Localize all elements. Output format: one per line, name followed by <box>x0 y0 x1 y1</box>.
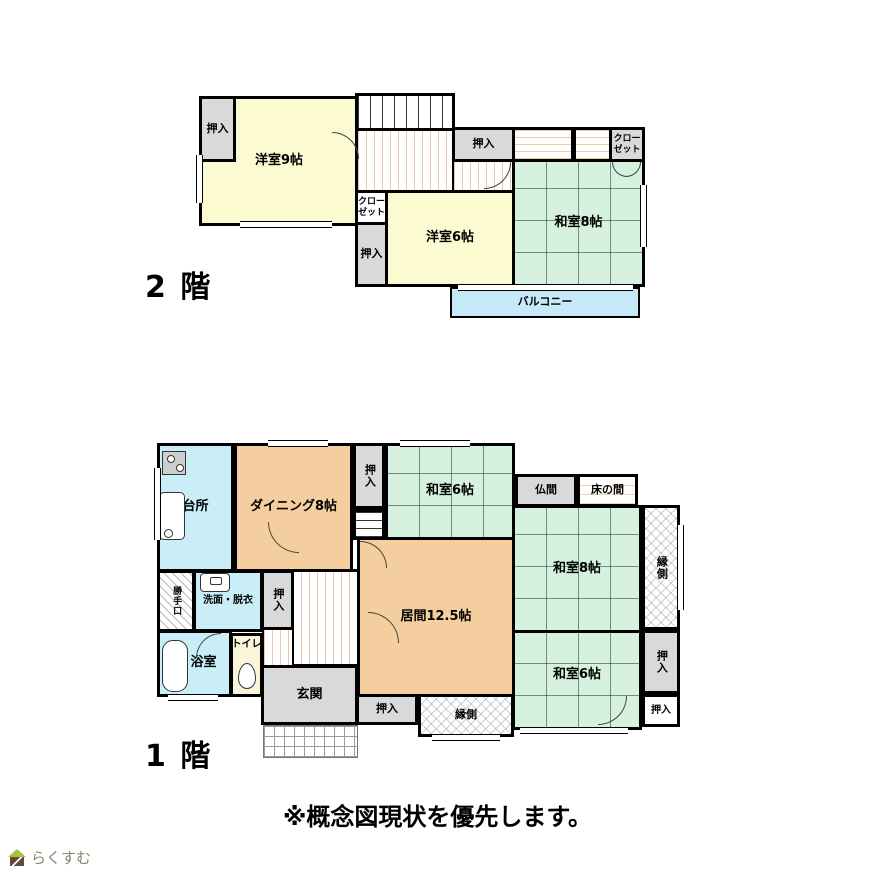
hallway-2f <box>355 128 455 193</box>
logo-text: らくすむ <box>31 847 91 868</box>
washbasin-icon <box>200 573 230 592</box>
window <box>432 734 500 741</box>
stairs-1f <box>353 509 385 540</box>
floor1-label: 1 階 <box>145 731 212 775</box>
room-label: 勝手口 <box>171 586 181 616</box>
closet-1f-oshiire-br: 押入 <box>642 694 680 727</box>
room-1f-butsuma: 仏間 <box>515 474 577 507</box>
room-label: 和室6帖 <box>426 484 474 499</box>
sliding-window <box>458 284 633 291</box>
engawa-right: 縁側 <box>642 505 680 630</box>
closet-2f-oshiire-c: 押入 <box>355 222 388 287</box>
room-label: ダイニング8帖 <box>250 500 337 515</box>
closet-2f-oshiire-b: 押入 <box>452 127 515 162</box>
room-label: 押入 <box>271 588 284 612</box>
room-label: 押入 <box>376 703 398 716</box>
closet-1f-oshiire-mid: 押入 <box>261 570 294 630</box>
wall-divider <box>571 127 576 162</box>
window <box>640 185 647 247</box>
room-1f-washitsu6-top: 和室6帖 <box>385 443 515 540</box>
room-label: トイレ <box>232 639 262 651</box>
closet-2f-hatch <box>512 127 612 162</box>
room-label: 押入 <box>361 248 383 261</box>
room-label: 和室8帖 <box>553 562 601 577</box>
window <box>196 155 203 203</box>
stairs-2f <box>355 93 455 131</box>
engawa-bottom: 縁側 <box>418 694 514 737</box>
room-label: バルコニー <box>518 296 573 309</box>
room-label: 押入 <box>363 464 376 488</box>
room-label: 和室8帖 <box>554 216 602 231</box>
bathtub-icon <box>162 640 188 692</box>
window <box>240 221 332 228</box>
window <box>154 468 161 540</box>
room-label: 押入 <box>207 123 229 136</box>
window <box>677 525 684 610</box>
window <box>268 440 328 447</box>
disclaimer-note: ※概念図現状を優先します。 <box>0 797 875 832</box>
room-label: 縁側 <box>655 556 668 580</box>
room-label: 台所 <box>182 500 208 515</box>
room-2f-washitsu8: 和室8帖 <box>512 159 645 287</box>
room-label: 洋室6帖 <box>426 231 474 246</box>
room-1f-washitsu8: 和室8帖 <box>512 505 642 633</box>
room-label: 和室6帖 <box>553 668 601 683</box>
room-label: 洗面・脱衣 <box>203 595 253 607</box>
balcony-2f: バルコニー <box>450 287 640 318</box>
room-label: 床の間 <box>591 484 624 497</box>
toilet-icon <box>238 663 256 689</box>
room-label: クローゼット <box>358 197 385 218</box>
katteguchi: 勝手口 <box>157 570 195 632</box>
floorplan-canvas: 洋室9帖 押入 押入 クローゼット 和室8帖 クローゼット 押入 洋室6帖 バル… <box>0 0 875 871</box>
sliding-door <box>520 727 628 734</box>
room-label: 押入 <box>655 650 668 674</box>
closet-2f-oshiire-a: 押入 <box>199 96 236 162</box>
room-1f-tokonoma: 床の間 <box>577 474 638 507</box>
room-label: 洋室9帖 <box>255 154 303 169</box>
room-label: 仏間 <box>535 484 557 497</box>
room-1f-washitsu6-br: 和室6帖 <box>512 630 642 730</box>
floor2-label: 2 階 <box>145 262 212 306</box>
house-icon <box>8 849 26 866</box>
closet-1f-oshiire-top: 押入 <box>353 443 385 509</box>
room-1f-genkan: 玄関 <box>261 665 358 725</box>
closet-2f-left: クローゼット <box>355 190 388 225</box>
room-label: 居間12.5帖 <box>400 610 471 625</box>
room-label: 押入 <box>651 705 671 717</box>
closet-1f-oshiire-right: 押入 <box>642 630 680 694</box>
hallway-1f-west <box>262 628 294 667</box>
site-logo: らくすむ <box>8 847 91 868</box>
kitchen-sink-icon <box>159 492 185 540</box>
window <box>400 440 470 447</box>
room-label: 玄関 <box>296 688 322 703</box>
room-label: 縁側 <box>455 709 477 722</box>
closet-2f-right: クローゼット <box>609 127 645 162</box>
room-label: 押入 <box>473 138 495 151</box>
entrance-porch <box>263 725 358 758</box>
stove-icon <box>162 451 186 475</box>
hallway-1f <box>290 569 360 667</box>
window <box>168 694 218 701</box>
closet-1f-oshiire-bottom: 押入 <box>356 694 418 725</box>
room-label: クローゼット <box>612 134 642 155</box>
room-2f-youshitsu6: 洋室6帖 <box>385 190 515 287</box>
